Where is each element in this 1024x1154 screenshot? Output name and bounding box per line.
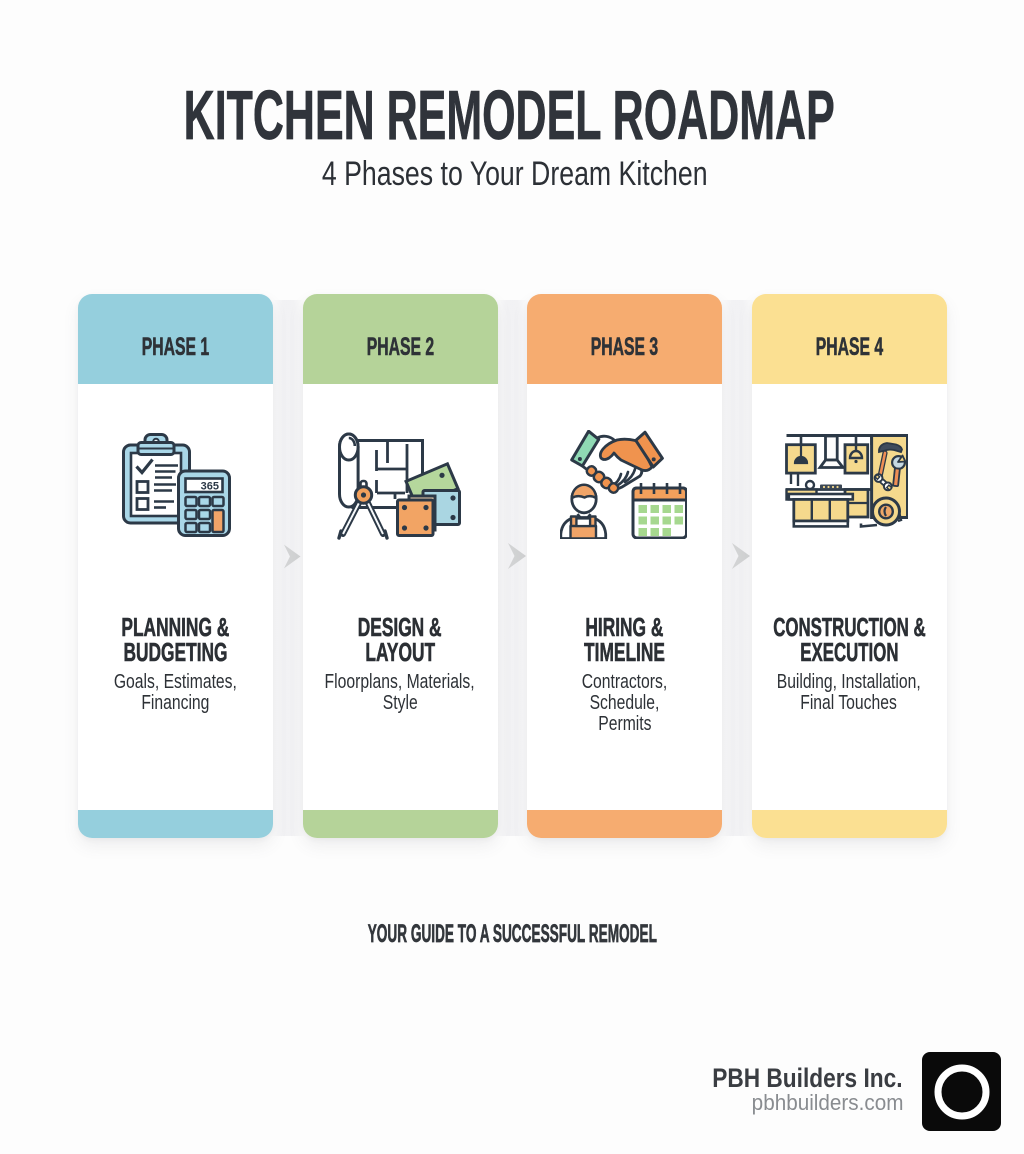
svg-text:365: 365 — [201, 481, 219, 493]
